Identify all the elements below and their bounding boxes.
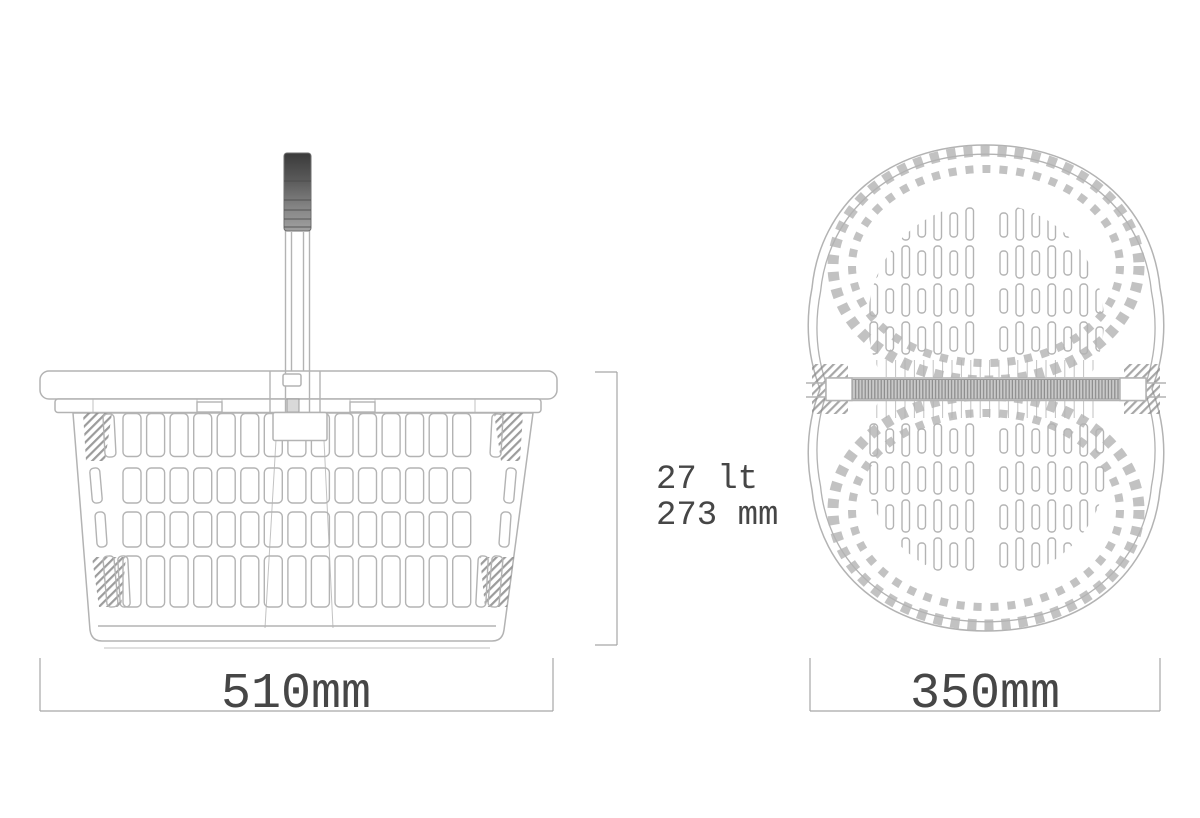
basket-side-view [40,153,557,648]
dimension-side-width: 510mm [40,658,553,723]
height-annotation: 273 mm [656,497,778,535]
capacity-annotation: 27 lt [656,461,758,499]
top-view-handle-bar [826,378,1146,401]
handle-shaft [285,230,310,372]
technical-drawing-page: 510mm 350mm 27 lt 273 mm [0,0,1200,818]
dimension-top-width: 350mm [810,658,1160,723]
dimension-height: 27 lt 273 mm [595,372,778,645]
top-width-dimension-label: 350mm [910,666,1060,723]
handle-bar-right-cap [1120,378,1146,401]
side-width-dimension-label: 510mm [221,666,371,723]
basket-top-view [806,145,1166,631]
basket-handle [284,153,311,372]
handle-bar-left-cap [826,378,852,401]
shopping-basket-drawing: 510mm 350mm 27 lt 273 mm [0,0,1200,818]
